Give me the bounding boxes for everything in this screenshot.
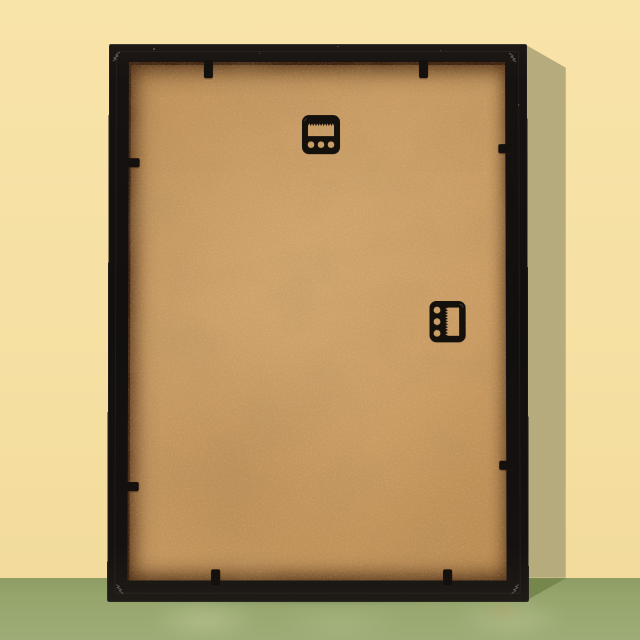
dust-speck — [259, 53, 260, 54]
corner-spring-icon — [115, 584, 125, 595]
retaining-tab-top-left — [204, 60, 213, 78]
corner-spring-icon — [510, 584, 520, 595]
dust-speck — [440, 50, 441, 51]
dust-speck — [153, 48, 155, 50]
corner-spring-icon — [112, 51, 122, 62]
picture-frame-back — [107, 44, 529, 602]
retaining-tab-right-upper — [498, 144, 512, 153]
sawtooth-hanger-icon — [301, 115, 341, 154]
floor-reflection — [148, 600, 260, 640]
corner-spring-icon — [507, 52, 517, 63]
dust-speck — [337, 46, 339, 47]
backing-reflection — [486, 602, 520, 620]
sawtooth-hanger-icon — [428, 301, 466, 342]
frame-cast-shadow-wall — [526, 45, 566, 578]
retaining-tab-right-lower — [499, 461, 513, 470]
dust-speck — [518, 104, 519, 106]
photo-scene — [0, 0, 640, 640]
retaining-tab-bottom-left — [211, 569, 220, 585]
retaining-tab-bottom-right — [443, 569, 452, 585]
retaining-tab-left-lower — [125, 482, 139, 491]
retaining-tab-left-upper — [126, 158, 140, 167]
floor-reflection — [275, 606, 405, 640]
retaining-tab-top-right — [419, 60, 428, 78]
